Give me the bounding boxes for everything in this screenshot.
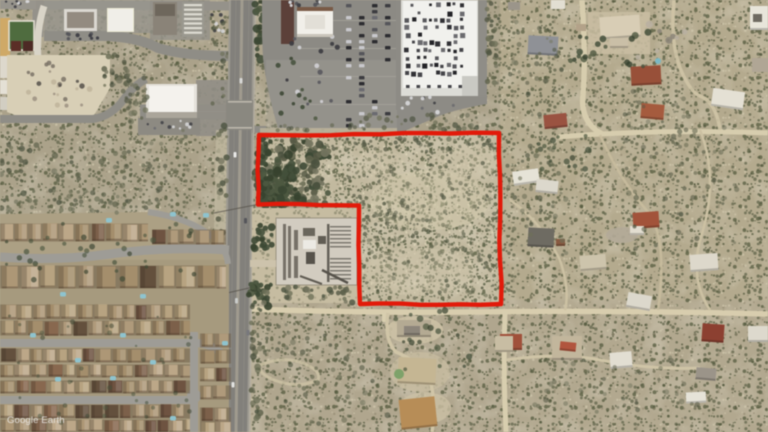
svg-text:Google Earth: Google Earth (7, 415, 65, 426)
